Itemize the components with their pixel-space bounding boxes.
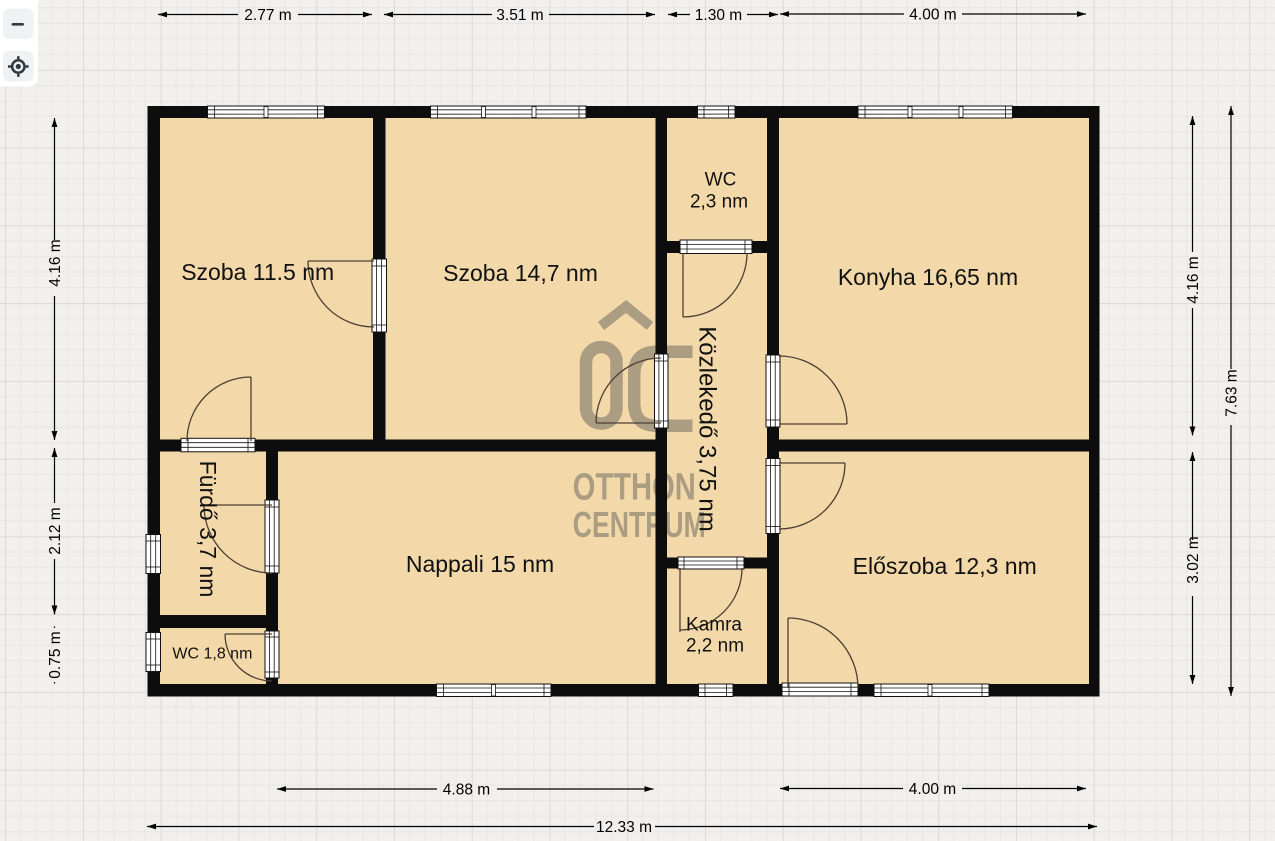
svg-text:Szoba 14,7 nm: Szoba 14,7 nm xyxy=(443,260,598,286)
svg-text:0.75 m: 0.75 m xyxy=(47,631,64,678)
svg-text:3.51 m: 3.51 m xyxy=(496,7,543,24)
svg-text:WC: WC xyxy=(705,170,737,191)
svg-text:2,3 nm: 2,3 nm xyxy=(690,192,748,213)
svg-text:4.88 m: 4.88 m xyxy=(443,782,490,799)
svg-text:Nappali 15 nm: Nappali 15 nm xyxy=(406,551,554,577)
svg-text:CENTRUM: CENTRUM xyxy=(573,504,706,545)
svg-text:3.02 m: 3.02 m xyxy=(1185,536,1202,583)
svg-text:2,2 nm: 2,2 nm xyxy=(686,636,744,657)
svg-text:7.63 m: 7.63 m xyxy=(1224,369,1241,416)
svg-text:Kamra: Kamra xyxy=(686,615,742,636)
svg-text:Konyha 16,65 nm: Konyha 16,65 nm xyxy=(838,264,1018,290)
svg-text:Közlekedő 3,75 nm: Közlekedő 3,75 nm xyxy=(694,326,721,531)
svg-text:OTTHON: OTTHON xyxy=(573,466,696,508)
svg-text:2.77 m: 2.77 m xyxy=(244,7,291,24)
svg-text:1.30 m: 1.30 m xyxy=(695,7,742,24)
svg-text:4.16 m: 4.16 m xyxy=(47,239,64,286)
svg-text:Fürdő 3,7 nm: Fürdő 3,7 nm xyxy=(195,461,221,598)
svg-text:4.00 m: 4.00 m xyxy=(909,781,956,798)
svg-text:12.33 m: 12.33 m xyxy=(596,819,652,836)
svg-text:4.00 m: 4.00 m xyxy=(909,7,956,24)
svg-text:WC 1,8 nm: WC 1,8 nm xyxy=(172,646,252,663)
svg-text:2.12 m: 2.12 m xyxy=(47,507,64,554)
svg-text:Előszoba 12,3 nm: Előszoba 12,3 nm xyxy=(853,553,1037,579)
svg-text:Szoba 11.5 nm: Szoba 11.5 nm xyxy=(181,259,334,285)
svg-text:4.16 m: 4.16 m xyxy=(1185,256,1202,303)
